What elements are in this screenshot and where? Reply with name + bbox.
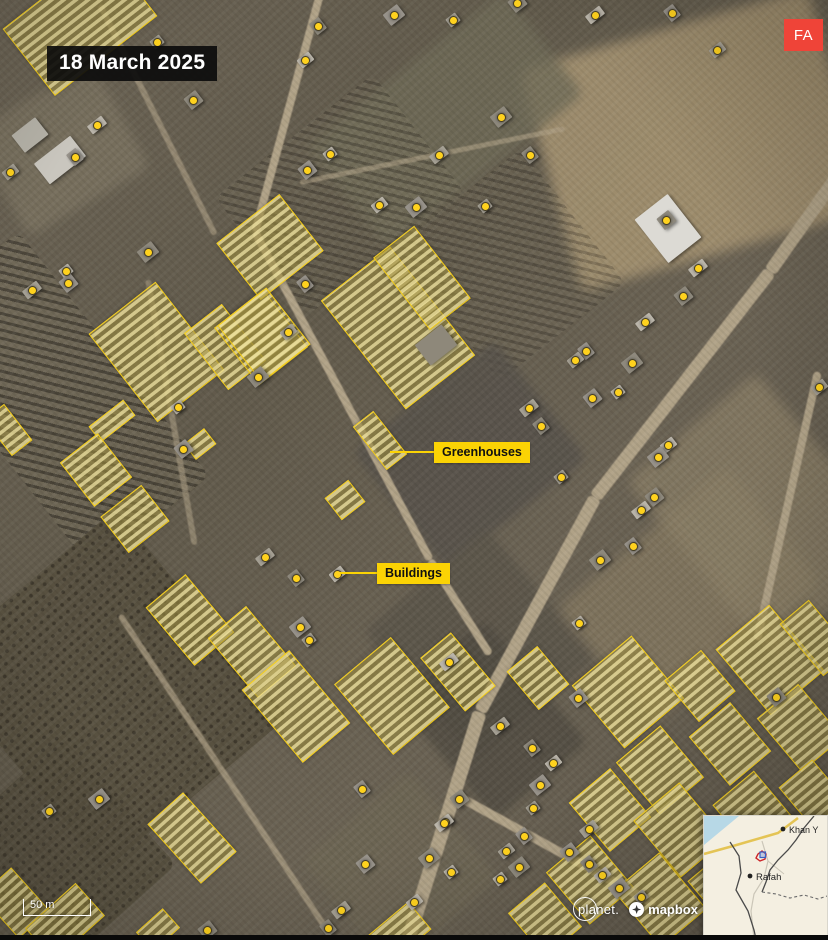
building-dot — [713, 46, 722, 55]
date-label: 18 March 2025 — [47, 46, 217, 81]
building-dot — [679, 292, 688, 301]
building-dot — [412, 203, 421, 212]
building-dot — [502, 847, 511, 856]
building-dot — [95, 795, 104, 804]
building-dot — [254, 373, 263, 382]
building-dot — [144, 248, 153, 257]
building-dot — [529, 804, 538, 813]
building-dot — [694, 264, 703, 273]
scale-bar-label: 50 m — [30, 899, 54, 911]
buildings-leader-line — [340, 572, 377, 574]
building-dot — [447, 868, 456, 877]
building-dot — [6, 168, 15, 177]
greenhouses-leader-line — [390, 451, 434, 453]
building-dot — [591, 11, 600, 20]
building-dot — [64, 279, 73, 288]
building-dot — [650, 493, 659, 502]
building-dot — [654, 453, 663, 462]
inset-locator-map: Khan Y Rafah — [703, 815, 828, 940]
building-dot — [45, 807, 54, 816]
greenhouse-polygon — [100, 485, 169, 553]
building-dot — [292, 574, 301, 583]
building-dot — [179, 445, 188, 454]
inset-city-dot-rafah — [748, 874, 753, 879]
inset-city-label-khan-younis: Khan Y — [789, 825, 818, 835]
building-dot — [390, 11, 399, 20]
building-dot — [513, 0, 522, 8]
building-dot — [410, 898, 419, 907]
inset-area-square — [760, 852, 766, 858]
building-dot — [668, 9, 677, 18]
building-dot — [337, 906, 346, 915]
building-dot — [481, 202, 490, 211]
building-dot — [575, 619, 584, 628]
building-dot — [664, 441, 673, 450]
building-dot — [28, 286, 37, 295]
building-dot — [571, 356, 580, 365]
building-dot — [588, 394, 597, 403]
building-dot — [628, 359, 637, 368]
building-dot — [496, 875, 505, 884]
building-dot — [565, 848, 574, 857]
greenhouse-polygon — [325, 480, 366, 521]
building-dot — [596, 556, 605, 565]
mapbox-logo: mapbox — [629, 902, 698, 917]
greenhouse-polygon — [353, 410, 407, 469]
building-dot — [585, 825, 594, 834]
building-dot — [662, 216, 671, 225]
building-dot — [537, 422, 546, 431]
inset-city-label-rafah: Rafah — [756, 872, 781, 883]
building-dot — [536, 781, 545, 790]
building-footprint — [635, 193, 702, 262]
building-dot — [301, 280, 310, 289]
building-dot — [585, 860, 594, 869]
building-dot — [361, 860, 370, 869]
building-dot — [598, 871, 607, 880]
building-dot — [815, 383, 824, 392]
annotation-layer — [0, 0, 828, 940]
greenhouse-polygon — [0, 404, 32, 456]
building-dot — [203, 926, 212, 935]
greenhouse-polygon — [507, 646, 570, 710]
building-dot — [375, 201, 384, 210]
building-dot — [445, 658, 454, 667]
building-dot — [326, 150, 335, 159]
building-dot — [637, 506, 646, 515]
building-dot — [62, 267, 71, 276]
greenhouses-callout: Greenhouses — [434, 442, 530, 463]
building-footprint — [11, 117, 48, 153]
building-dot — [455, 795, 464, 804]
building-dot — [314, 22, 323, 31]
building-dot — [637, 893, 646, 902]
building-dot — [525, 404, 534, 413]
building-dot — [549, 759, 558, 768]
building-dot — [515, 863, 524, 872]
mapbox-star-icon — [632, 905, 641, 914]
building-dot — [582, 347, 591, 356]
greenhouse-polygon — [60, 433, 132, 507]
map-attribution: planet. mapbox — [578, 902, 698, 917]
greenhouse-polygon — [147, 792, 236, 884]
satellite-map: 18 March 2025 FA Greenhouses Buildings 5… — [0, 0, 828, 940]
building-dot — [296, 623, 305, 632]
building-dot — [284, 328, 293, 337]
building-dot — [557, 473, 566, 482]
building-dot — [574, 694, 583, 703]
building-dot — [440, 819, 449, 828]
forensic-architecture-logo: FA — [784, 19, 823, 51]
buildings-callout: Buildings — [377, 563, 450, 584]
building-dot — [93, 121, 102, 130]
building-dot — [303, 166, 312, 175]
mapbox-logo-text: mapbox — [648, 902, 698, 917]
building-dot — [528, 744, 537, 753]
building-dot — [301, 56, 310, 65]
bottom-letterbox-bar — [0, 935, 828, 940]
mapbox-icon — [629, 902, 644, 917]
planet-logo: planet. — [578, 902, 619, 917]
scale-bar: 50 m — [23, 899, 91, 916]
building-dot — [261, 553, 270, 562]
building-dot — [435, 151, 444, 160]
building-dot — [526, 151, 535, 160]
building-dot — [615, 884, 624, 893]
building-dot — [449, 16, 458, 25]
building-dot — [174, 403, 183, 412]
building-dot — [614, 388, 623, 397]
building-dot — [772, 693, 781, 702]
building-dot — [333, 570, 342, 579]
greenhouse-polygon — [572, 636, 684, 749]
building-dot — [520, 832, 529, 841]
building-dot — [71, 153, 80, 162]
building-dot — [305, 636, 314, 645]
inset-city-dot-khan-younis — [781, 827, 786, 832]
building-dot — [641, 318, 650, 327]
building-dot — [629, 542, 638, 551]
building-dot — [324, 924, 333, 933]
building-dot — [189, 96, 198, 105]
building-dot — [497, 113, 506, 122]
building-dot — [496, 722, 505, 731]
building-dot — [425, 854, 434, 863]
planet-ring-icon — [573, 897, 597, 921]
building-dot — [358, 785, 367, 794]
